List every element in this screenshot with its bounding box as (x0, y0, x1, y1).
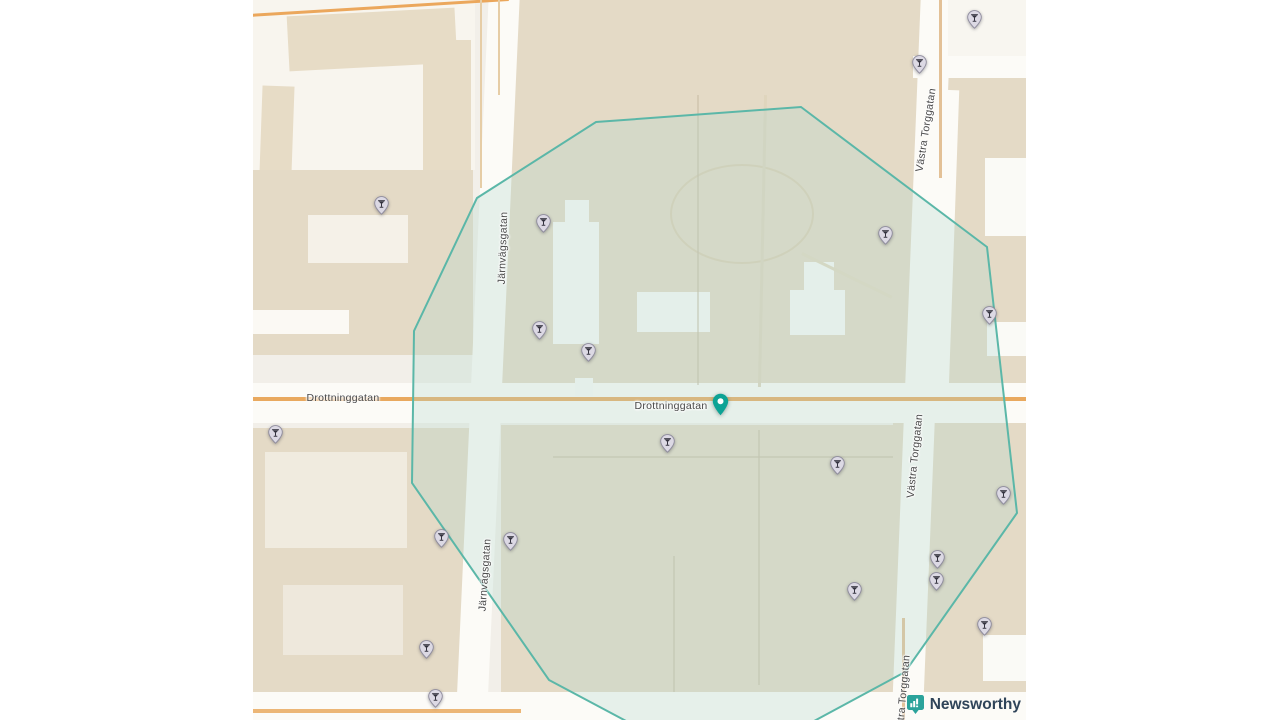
selected-location-pin[interactable] (712, 393, 729, 416)
bar-marker[interactable] (967, 10, 982, 29)
bar-marker[interactable] (977, 617, 992, 636)
left-margin (0, 0, 253, 720)
bar-marker[interactable] (428, 689, 443, 708)
bar-marker[interactable] (503, 532, 518, 551)
newsworthy-logo[interactable]: Newsworthy (904, 693, 1023, 716)
bar-marker[interactable] (830, 456, 845, 475)
page: DrottninggatanDrottninggatanJärnvägsgata… (0, 0, 1280, 720)
bar-marker[interactable] (532, 321, 547, 340)
bar-marker[interactable] (982, 306, 997, 325)
bar-marker[interactable] (929, 572, 944, 591)
map-viewport[interactable]: DrottninggatanDrottninggatanJärnvägsgata… (253, 0, 1026, 720)
bar-marker[interactable] (878, 226, 893, 245)
bar-marker[interactable] (847, 582, 862, 601)
bar-marker[interactable] (660, 434, 675, 453)
bar-marker[interactable] (268, 425, 283, 444)
bar-marker[interactable] (996, 486, 1011, 505)
radius-polygon (253, 0, 1026, 720)
bar-marker[interactable] (930, 550, 945, 569)
right-margin (1026, 0, 1280, 720)
newsworthy-wordmark: Newsworthy (930, 696, 1021, 714)
bar-marker[interactable] (581, 343, 596, 362)
bar-marker[interactable] (536, 214, 551, 233)
bar-marker[interactable] (912, 55, 927, 74)
bar-marker[interactable] (434, 529, 449, 548)
bar-marker[interactable] (419, 640, 434, 659)
bar-marker[interactable] (374, 196, 389, 215)
newsworthy-icon (906, 694, 925, 715)
